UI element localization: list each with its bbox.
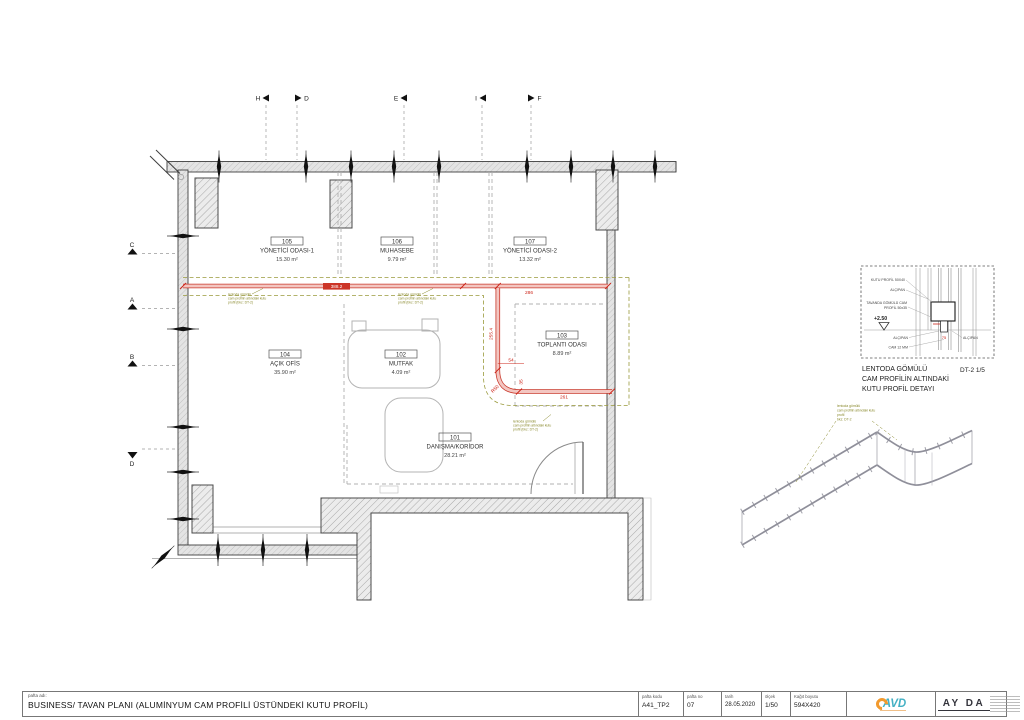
callout-line: profil (bkz: DT-2): [228, 301, 253, 305]
detail-ref: DT-2 1/5: [960, 367, 985, 374]
sheet-title: BUSINESS/ TAVAN PLANI (ALUMİNYUM CAM PRO…: [28, 700, 633, 710]
avd-logo-underline: [880, 710, 906, 711]
room-no: 102: [396, 353, 407, 359]
room-no: 101: [450, 436, 461, 442]
column: [195, 178, 218, 228]
room-name: YÖNETİCİ ODASI-2: [503, 248, 558, 255]
room-label-103: 103 TOPLANTI ODASI 8.89 m²: [537, 331, 587, 357]
room-area: 28.21 m²: [444, 453, 466, 459]
grid-triangle-icon: [128, 249, 138, 255]
room-label-104: 104 AÇIK OFİS 35.90 m²: [269, 350, 301, 376]
dim-offset2: 35: [519, 379, 525, 385]
detail-label: ALÇIPAN: [893, 336, 908, 340]
callout-line: cam profilin altındaki kutu: [837, 409, 875, 413]
column: [192, 485, 213, 533]
room-no: 106: [392, 240, 403, 246]
dim-main: 388.2: [331, 284, 343, 289]
bottom-wall: [178, 545, 358, 555]
grid-letter: A: [130, 297, 135, 304]
field-pafta-kodu: pafta kodu A41_TP2: [639, 692, 684, 716]
grid-letter: D: [130, 461, 135, 468]
room-name: YÖNETİCİ ODASI-1: [260, 248, 315, 255]
room-area: 8.89 m²: [553, 351, 572, 357]
room-no: 107: [525, 240, 536, 246]
grid-letter: C: [130, 242, 135, 249]
room-name: AÇIK OFİS: [270, 361, 300, 368]
grid-markers-left: C A B D: [128, 242, 179, 468]
callout-3: lentoda gömülü cam profilin altındaki ku…: [513, 415, 551, 432]
field-kagit-boyutu: Kağıt boyutu 594X420: [791, 692, 847, 716]
field-value: A41_TP2: [642, 702, 680, 709]
drawing-sheet: H D E I F C A B D: [0, 0, 1024, 720]
room-label-102: 102 MUTFAK 4.09 m²: [385, 350, 417, 376]
callout-line: profil (bkz: DT-2): [513, 428, 538, 432]
ayda-logo-underline: [938, 710, 990, 711]
grid-letter: I: [475, 96, 477, 103]
ayda-logo-text: AY DA: [943, 698, 986, 709]
field-pafta-no: pafta no 07: [684, 692, 722, 716]
detail-label: ALÇIPAN: [890, 288, 905, 292]
entry-door: [531, 442, 583, 494]
detail-label: TAVANDA GÖMÜLÜ CAM: [866, 301, 907, 305]
grid-letter: H: [256, 96, 261, 103]
grid-triangle-icon: [295, 95, 302, 102]
detail-box: 75 +2.50 KUTU PROFİL 50X40 ALÇIPAN TAVAN…: [861, 266, 994, 393]
callout-2: lentoda gömülü cam profilin altındaki ku…: [398, 289, 436, 305]
elevation-value: +2.50: [874, 316, 887, 322]
callout-line: lentoda gömülü: [837, 404, 860, 408]
dim-offset: 54: [508, 358, 514, 364]
avd-logo: AVD: [876, 697, 906, 711]
grid-triangle-icon: [480, 95, 487, 102]
grid-triangle-icon: [263, 95, 270, 102]
detail-dim: 75: [942, 335, 947, 340]
grid-letter: D: [304, 96, 309, 103]
detail-caption: KUTU PROFİL DETAYI: [862, 384, 934, 393]
field-label: tarih: [725, 694, 758, 699]
field-tarih: tarih 28.05.2020: [722, 692, 762, 716]
grid-triangle-icon: [128, 452, 138, 459]
title-cell: pafta adı: BUSINESS/ TAVAN PLANI (ALUMİN…: [23, 692, 639, 716]
callout-1: lentoda gömülü cam profilin altındaki ku…: [228, 289, 266, 305]
left-wall: [178, 170, 188, 545]
field-olcek: ölçek 1/50: [762, 692, 791, 716]
grid-triangle-icon: [128, 304, 138, 310]
detail-label: KUTU PROFİL 50X40: [871, 277, 905, 282]
ayda-logo: AY DA: [938, 698, 990, 711]
grid-letter: F: [538, 96, 542, 103]
dim-vertical: 255.4: [489, 328, 495, 340]
room-label-105: 105 YÖNETİCİ ODASI-1 15.30 m²: [260, 237, 315, 263]
grid-letter: E: [394, 96, 399, 103]
callout-line: profil: [837, 413, 845, 417]
detail-label: PROFİL 50x35: [884, 305, 907, 310]
room-name: MUTFAK: [389, 362, 413, 368]
box-profile-section: [931, 302, 955, 321]
field-value: 594X420: [794, 702, 843, 709]
room-no: 104: [280, 353, 291, 359]
room-area: 9.79 m²: [388, 257, 407, 263]
grid-triangle-icon: [128, 361, 138, 367]
callout-line: bkz: DT-2: [837, 418, 852, 422]
room-label-101: 101 DANIŞMA/KORİDOR 28.21 m²: [426, 433, 484, 459]
callout-line: profil (bkz: DT-2): [398, 301, 423, 305]
field-value: 28.05.2020: [725, 702, 758, 708]
avd-logo-cell: AVD: [847, 692, 936, 716]
field-value: 1/50: [765, 702, 787, 709]
detail-caption: CAM PROFİLİN ALTINDAKİ: [862, 374, 949, 383]
room-area: 35.90 m²: [274, 370, 296, 376]
room-name: TOPLANTI ODASI: [537, 343, 587, 349]
dim-right: 286: [525, 290, 533, 296]
room-name: DANIŞMA/KORİDOR: [426, 444, 484, 451]
grid-letter: B: [130, 354, 134, 361]
stair-structure: [321, 498, 651, 600]
grid-triangle-icon: [401, 95, 408, 102]
room-area: 15.30 m²: [276, 257, 298, 263]
ayda-logo-cell: AY DA: [936, 692, 1022, 716]
dim-radius: R50: [490, 384, 501, 395]
room-area: 13.32 m²: [519, 257, 541, 263]
field-label: pafta no: [687, 694, 718, 699]
plan-canvas: H D E I F C A B D: [0, 0, 1024, 690]
isometric-sketch: lentoda gömülü cam profilin altındaki ku…: [742, 404, 972, 545]
approval-stamp: [990, 696, 1020, 712]
field-label: ölçek: [765, 694, 787, 699]
title-block: pafta adı: BUSINESS/ TAVAN PLANI (ALUMİN…: [22, 691, 1007, 717]
room-label-106: 106 MUHASEBE 9.79 m²: [380, 237, 414, 263]
room-area: 4.09 m²: [392, 370, 411, 376]
grid-markers-top: H D E I F: [256, 95, 542, 161]
dim-bottom: 261: [560, 395, 568, 401]
field-value: 07: [687, 702, 718, 709]
field-label: pafta kodu: [642, 694, 680, 699]
field-label: Kağıt boyutu: [794, 694, 843, 699]
plan-callouts: lentoda gömülü cam profilin altındaki ku…: [228, 289, 551, 432]
detail-label: ALÇIPAN: [963, 336, 978, 340]
room-name: MUHASEBE: [380, 249, 414, 255]
detail-caption: LENTODA GÖMÜLÜ: [862, 365, 927, 373]
grid-triangle-icon: [528, 95, 535, 102]
column: [596, 170, 618, 230]
title-label: pafta adı:: [28, 693, 633, 698]
room-label-107: 107 YÖNETİCİ ODASI-2 13.32 m²: [503, 237, 558, 263]
detail-label: CAM 12 MM: [889, 346, 909, 350]
room-no: 103: [557, 334, 568, 340]
room-no: 105: [282, 240, 293, 246]
